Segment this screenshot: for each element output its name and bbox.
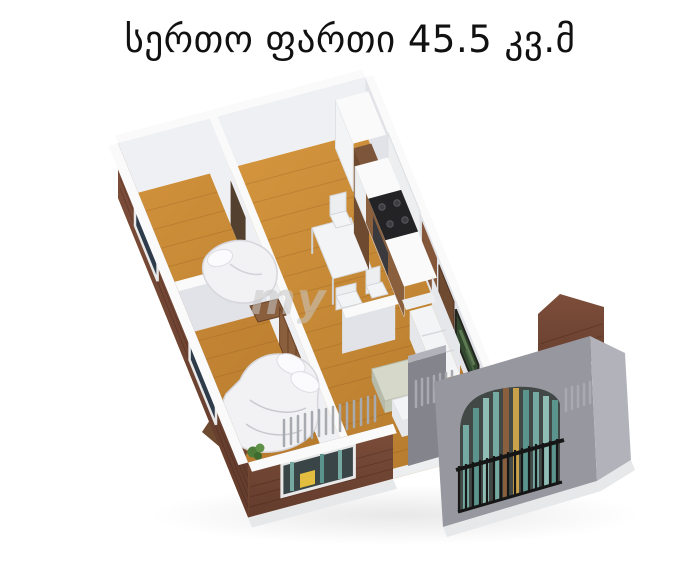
balcony-side-wall	[590, 336, 631, 481]
page: სერთო ფართი 45.5 კვ.მ	[0, 0, 700, 587]
floor-plan-illustration: my	[0, 0, 700, 587]
watermark-text: my	[250, 274, 328, 325]
